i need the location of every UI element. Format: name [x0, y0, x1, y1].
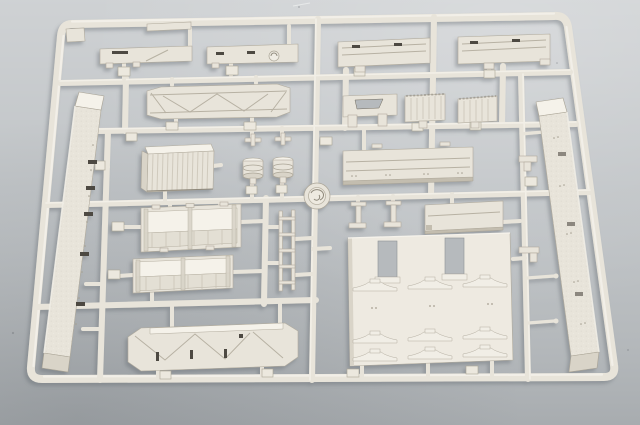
- open-wagon-box-lower: [133, 255, 233, 293]
- window-opening: [445, 238, 464, 274]
- sprue-photo: Photograph of an ivory-colored injection…: [0, 0, 640, 425]
- truss-roof-panel: [147, 84, 290, 119]
- braced-side-girder: [128, 323, 298, 371]
- corner-tab-plate: [66, 28, 85, 42]
- bunker-wall-panel: [348, 233, 513, 366]
- window-opening: [378, 241, 397, 277]
- bracket-opening: [355, 99, 383, 109]
- hatch-plate: [425, 201, 503, 234]
- photo-stage: Photograph of an ivory-colored injection…: [0, 0, 640, 425]
- runner-hub-disc: [304, 183, 330, 209]
- open-wagon-box-upper: [141, 202, 241, 252]
- ribbed-box: [141, 144, 214, 192]
